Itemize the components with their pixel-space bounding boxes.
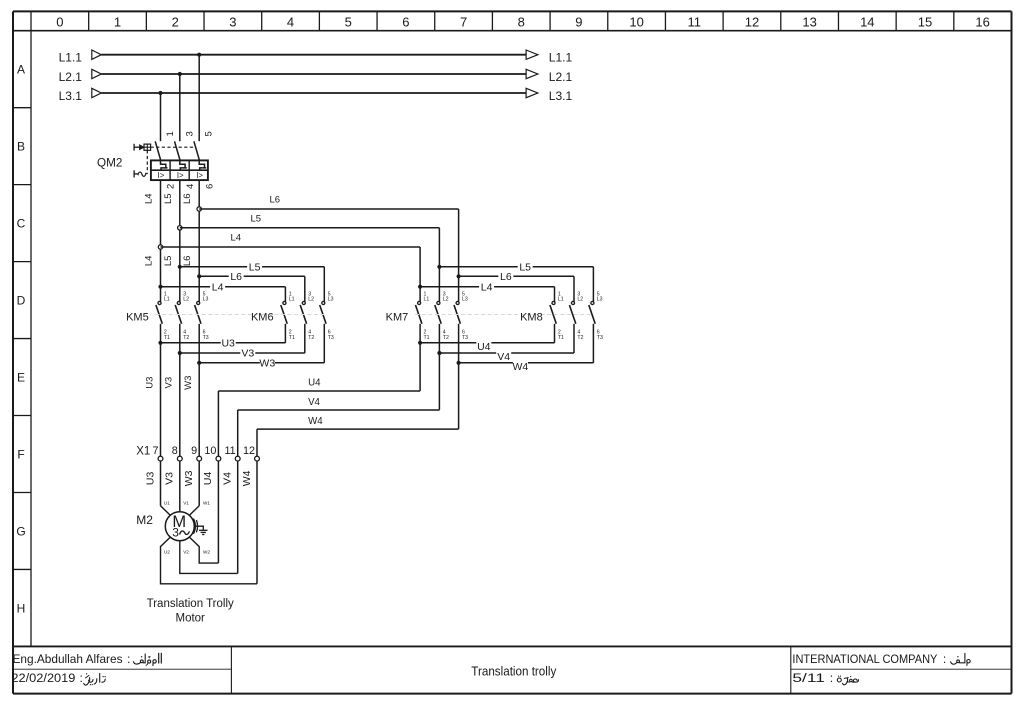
svg-text:L6: L6 bbox=[230, 271, 242, 283]
svg-text:L2: L2 bbox=[577, 297, 583, 303]
svg-text:8: 8 bbox=[172, 445, 178, 457]
svg-text:L6: L6 bbox=[500, 271, 512, 283]
svg-text:L5: L5 bbox=[163, 193, 174, 204]
svg-text:3: 3 bbox=[184, 131, 195, 136]
svg-text:14: 14 bbox=[860, 14, 874, 29]
svg-text:B: B bbox=[17, 140, 25, 154]
svg-text:W4: W4 bbox=[241, 470, 253, 486]
svg-text:A: A bbox=[17, 63, 25, 77]
svg-text:16: 16 bbox=[975, 14, 989, 29]
svg-text:I>: I> bbox=[158, 171, 165, 180]
svg-text:L5: L5 bbox=[251, 213, 262, 224]
svg-text:T1: T1 bbox=[424, 335, 430, 341]
svg-text:L6: L6 bbox=[182, 256, 193, 267]
svg-text:L3: L3 bbox=[328, 297, 334, 303]
svg-text:5: 5 bbox=[345, 14, 352, 29]
svg-text:L6: L6 bbox=[182, 193, 193, 204]
svg-text:L2.1: L2.1 bbox=[549, 70, 573, 84]
svg-text:T3: T3 bbox=[203, 335, 209, 341]
svg-text:V3: V3 bbox=[164, 377, 175, 389]
svg-text:L2: L2 bbox=[443, 297, 449, 303]
svg-text::: : bbox=[943, 652, 946, 666]
svg-text:D: D bbox=[17, 294, 26, 308]
svg-text:L5: L5 bbox=[519, 262, 531, 274]
svg-text:W4: W4 bbox=[513, 361, 529, 373]
svg-text::: : bbox=[80, 671, 83, 685]
svg-text:T2: T2 bbox=[577, 335, 583, 341]
svg-text:INTERNATIONAL COMPANY: INTERNATIONAL COMPANY bbox=[792, 652, 937, 666]
svg-text:G: G bbox=[16, 524, 25, 538]
svg-text:L4: L4 bbox=[212, 281, 224, 293]
svg-text:4: 4 bbox=[185, 184, 196, 189]
svg-text:W1: W1 bbox=[203, 500, 210, 505]
svg-text:10: 10 bbox=[204, 445, 216, 457]
svg-text:L2.1: L2.1 bbox=[59, 70, 83, 84]
svg-text:U4: U4 bbox=[477, 341, 491, 353]
svg-text:L1: L1 bbox=[289, 297, 295, 303]
svg-text:11: 11 bbox=[224, 445, 235, 457]
svg-text:4: 4 bbox=[287, 14, 294, 29]
svg-text:V4: V4 bbox=[221, 472, 233, 485]
svg-text:Eng.Abdullah Alfares: Eng.Abdullah Alfares bbox=[13, 652, 123, 666]
svg-text:QM2: QM2 bbox=[97, 157, 122, 170]
svg-text:V3: V3 bbox=[164, 472, 176, 485]
svg-text:6: 6 bbox=[204, 184, 215, 189]
svg-text:W4: W4 bbox=[308, 416, 323, 427]
svg-text:W2: W2 bbox=[203, 549, 210, 554]
svg-text:15: 15 bbox=[918, 14, 932, 29]
svg-text:V1: V1 bbox=[183, 500, 189, 505]
svg-text:U2: U2 bbox=[164, 549, 170, 554]
svg-text:L4: L4 bbox=[144, 193, 155, 204]
svg-text:0: 0 bbox=[56, 14, 63, 29]
svg-text:V4: V4 bbox=[308, 397, 320, 408]
svg-text:T2: T2 bbox=[443, 335, 449, 341]
svg-text:V4: V4 bbox=[497, 351, 510, 363]
svg-text:U4: U4 bbox=[308, 377, 321, 388]
svg-text:X1: X1 bbox=[136, 446, 150, 458]
svg-text:L1.1: L1.1 bbox=[549, 51, 573, 65]
svg-text:L1: L1 bbox=[164, 297, 170, 303]
svg-text:3: 3 bbox=[229, 14, 236, 29]
svg-text:12: 12 bbox=[745, 14, 759, 29]
svg-text::: : bbox=[127, 652, 130, 666]
svg-text:6: 6 bbox=[402, 14, 409, 29]
svg-text:9: 9 bbox=[191, 445, 197, 457]
svg-text:L3.1: L3.1 bbox=[59, 89, 83, 103]
svg-text:L6: L6 bbox=[270, 195, 281, 206]
svg-text:8: 8 bbox=[518, 14, 525, 29]
svg-text:T3: T3 bbox=[462, 335, 468, 341]
svg-text:L4: L4 bbox=[481, 281, 493, 293]
svg-text:U3: U3 bbox=[144, 472, 156, 486]
svg-text:KM8: KM8 bbox=[520, 311, 543, 323]
svg-text:Translation trolly: Translation trolly bbox=[471, 665, 557, 679]
svg-text:U1: U1 bbox=[164, 500, 170, 505]
svg-text:Translation Trolly: Translation Trolly bbox=[147, 598, 234, 610]
svg-text:T2: T2 bbox=[308, 335, 314, 341]
svg-text:U3: U3 bbox=[221, 338, 235, 350]
svg-text:5: 5 bbox=[204, 131, 215, 136]
svg-text:L3: L3 bbox=[597, 297, 603, 303]
svg-text:12: 12 bbox=[243, 445, 255, 457]
svg-text:L5: L5 bbox=[163, 256, 174, 267]
svg-text:KM5: KM5 bbox=[126, 311, 149, 323]
svg-text:M2: M2 bbox=[136, 513, 153, 527]
svg-text:L1: L1 bbox=[424, 297, 430, 303]
svg-text:T1: T1 bbox=[289, 335, 295, 341]
svg-text:KM6: KM6 bbox=[251, 311, 274, 323]
svg-text:E: E bbox=[17, 371, 25, 385]
svg-text:T2: T2 bbox=[183, 335, 189, 341]
svg-text:2: 2 bbox=[166, 184, 177, 189]
svg-text:L2: L2 bbox=[308, 297, 314, 303]
svg-text:L1.1: L1.1 bbox=[59, 51, 83, 65]
svg-text:3: 3 bbox=[172, 525, 179, 539]
svg-text:L4: L4 bbox=[144, 256, 155, 267]
svg-text:W3: W3 bbox=[183, 376, 194, 390]
svg-text:KM7: KM7 bbox=[386, 311, 409, 323]
svg-text:V2: V2 bbox=[183, 549, 189, 554]
svg-text:L1: L1 bbox=[558, 297, 564, 303]
svg-text:C: C bbox=[17, 217, 26, 231]
svg-text:1: 1 bbox=[114, 14, 121, 29]
svg-text:W3: W3 bbox=[259, 358, 275, 370]
svg-text:7: 7 bbox=[152, 445, 158, 457]
svg-text:T1: T1 bbox=[164, 335, 170, 341]
svg-text:T3: T3 bbox=[328, 335, 334, 341]
svg-text:I>: I> bbox=[196, 171, 203, 180]
svg-text:F: F bbox=[17, 447, 24, 461]
svg-text:I>: I> bbox=[177, 171, 184, 180]
svg-text:V3: V3 bbox=[241, 348, 254, 360]
svg-text:W3: W3 bbox=[183, 470, 195, 486]
svg-text:11: 11 bbox=[688, 14, 702, 29]
svg-text:H: H bbox=[17, 601, 26, 615]
svg-text:L3.1: L3.1 bbox=[549, 89, 573, 103]
svg-text:U4: U4 bbox=[202, 472, 214, 486]
svg-text:L3: L3 bbox=[462, 297, 468, 303]
svg-text:L2: L2 bbox=[183, 297, 189, 303]
svg-text:Motor: Motor bbox=[175, 613, 205, 625]
svg-text:7: 7 bbox=[460, 14, 467, 29]
svg-text:T1: T1 bbox=[558, 335, 564, 341]
svg-text:L4: L4 bbox=[231, 232, 242, 243]
svg-text:1: 1 bbox=[165, 131, 176, 136]
svg-text:10: 10 bbox=[629, 14, 643, 29]
svg-text:L3: L3 bbox=[203, 297, 209, 303]
svg-text:13: 13 bbox=[802, 14, 816, 29]
svg-text:9: 9 bbox=[575, 14, 582, 29]
svg-text::: : bbox=[830, 671, 833, 685]
svg-text:T3: T3 bbox=[597, 335, 603, 341]
svg-text:22/02/2019: 22/02/2019 bbox=[11, 671, 75, 685]
svg-text:2: 2 bbox=[172, 14, 179, 29]
svg-text:U3: U3 bbox=[144, 377, 155, 389]
svg-text:5/11: 5/11 bbox=[792, 671, 825, 685]
svg-text:L5: L5 bbox=[249, 262, 261, 274]
